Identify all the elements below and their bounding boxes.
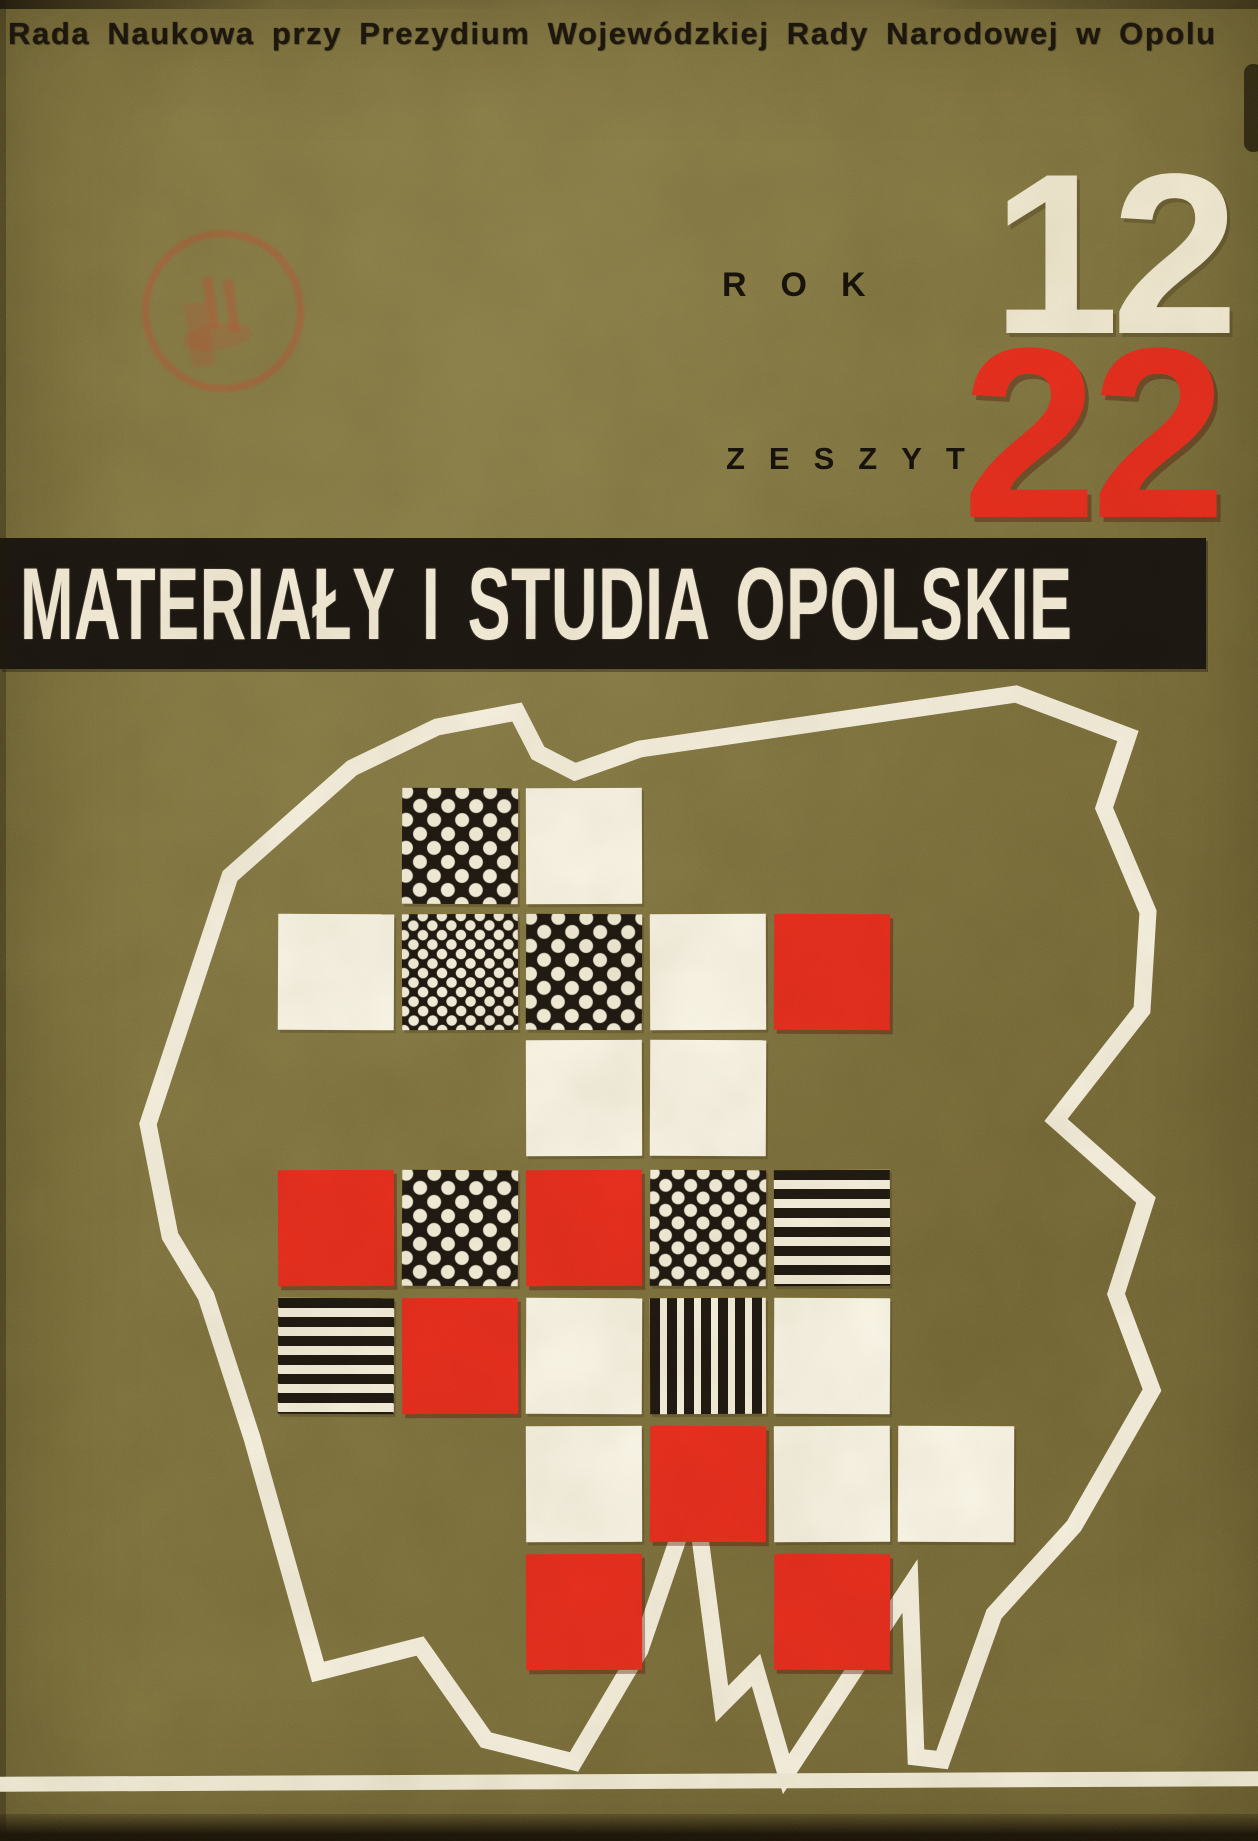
map-square-white	[650, 914, 766, 1030]
map-square-white	[650, 1040, 767, 1157]
map-square-red	[526, 1554, 642, 1670]
map-square-red	[650, 1426, 767, 1543]
scan-edge-bottom	[0, 1814, 1258, 1841]
scan-edge-top	[0, 0, 1258, 9]
map-square-white	[774, 1426, 890, 1542]
map-square-red	[774, 1554, 891, 1671]
map-square-white	[774, 1298, 891, 1415]
map-square-red	[526, 1170, 642, 1286]
map-square-white	[526, 788, 642, 904]
map-squares	[0, 0, 1258, 1841]
map-square-dots-lg	[526, 914, 643, 1031]
map-square-white	[898, 1426, 1015, 1543]
map-square-white	[526, 1040, 642, 1156]
map-square-dots-sm	[402, 914, 518, 1030]
map-square-white	[526, 1298, 643, 1415]
map-square-stripes-v	[650, 1298, 766, 1414]
map-square-red	[402, 1298, 518, 1414]
map-square-white	[278, 914, 395, 1031]
journal-cover: Rada Naukowa przy Prezydium Wojewódzkiej…	[0, 0, 1258, 1841]
map-square-white	[526, 1426, 642, 1542]
scan-edge-left	[0, 0, 6, 1841]
map-square-red	[774, 914, 891, 1031]
map-square-dots-lg	[402, 1170, 519, 1287]
map-square-stripes-h	[278, 1298, 395, 1415]
map-square-dots-md	[650, 1170, 767, 1287]
map-square-dots-lg	[402, 788, 519, 905]
scan-mark-right	[1244, 64, 1258, 152]
map-square-stripes-h	[774, 1170, 890, 1286]
map-square-red	[278, 1170, 394, 1286]
